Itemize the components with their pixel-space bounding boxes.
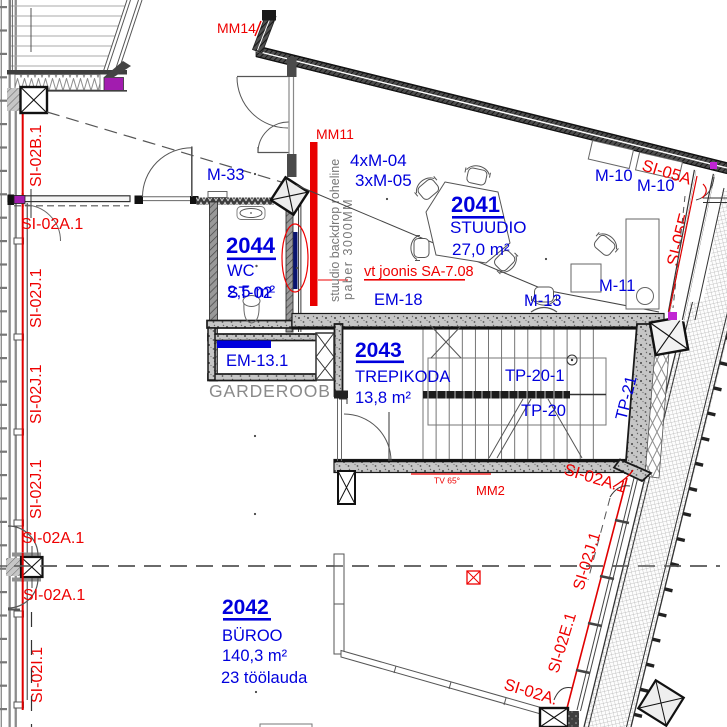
svg-text:EM-13.1: EM-13.1 bbox=[226, 352, 288, 370]
svg-text:stuudio backdrop roheline: stuudio backdrop roheline bbox=[328, 159, 342, 302]
svg-text:13,8 m²: 13,8 m² bbox=[355, 389, 411, 407]
svg-text:BÜROO: BÜROO bbox=[222, 627, 283, 645]
svg-text:M-13: M-13 bbox=[524, 292, 562, 310]
svg-text:2044: 2044 bbox=[226, 233, 276, 258]
svg-text:EM-18: EM-18 bbox=[374, 291, 423, 309]
svg-text:SI-02J.1: SI-02J.1 bbox=[28, 268, 45, 328]
svg-text:TV 65°: TV 65° bbox=[434, 476, 460, 486]
svg-text:M-11: M-11 bbox=[599, 277, 635, 295]
svg-text:MM11: MM11 bbox=[316, 126, 354, 142]
svg-text:SI-02E.1: SI-02E.1 bbox=[546, 611, 580, 676]
svg-text:SI-02B.1: SI-02B.1 bbox=[28, 125, 45, 187]
svg-text:MM2: MM2 bbox=[476, 483, 505, 498]
svg-text:WC: WC bbox=[227, 262, 255, 280]
svg-text:M-33: M-33 bbox=[207, 166, 245, 184]
svg-text:140,3 m²: 140,3 m² bbox=[222, 647, 288, 665]
svg-text:SI-02J.1: SI-02J.1 bbox=[28, 459, 45, 519]
svg-text:SI-02A.1: SI-02A.1 bbox=[22, 530, 84, 547]
svg-text:SI-02A.1: SI-02A.1 bbox=[23, 587, 85, 604]
svg-text:STUUDIO: STUUDIO bbox=[450, 218, 527, 237]
svg-text:TP-20: TP-20 bbox=[521, 402, 566, 420]
svg-text:2041: 2041 bbox=[451, 192, 500, 217]
svg-text:TP-20-1: TP-20-1 bbox=[505, 367, 565, 385]
svg-text:27,0 m²: 27,0 m² bbox=[452, 240, 510, 259]
svg-text:2042: 2042 bbox=[222, 596, 269, 619]
svg-text:GARDEROOB: GARDEROOB bbox=[209, 381, 331, 401]
svg-text:3xM-05: 3xM-05 bbox=[355, 171, 412, 190]
svg-text:paber 3000MM: paber 3000MM bbox=[341, 198, 355, 300]
svg-text:ST-02: ST-02 bbox=[227, 283, 272, 302]
svg-text:SI-02A.1: SI-02A.1 bbox=[21, 216, 83, 233]
svg-text:MM14: MM14 bbox=[217, 20, 256, 36]
svg-text:2043: 2043 bbox=[355, 339, 402, 362]
svg-text:vt joonis SA-7.08: vt joonis SA-7.08 bbox=[364, 264, 474, 280]
svg-text:23 töölauda: 23 töölauda bbox=[221, 669, 308, 687]
svg-text:TREPIKODA: TREPIKODA bbox=[355, 368, 450, 386]
svg-text:SI-02J.1: SI-02J.1 bbox=[28, 364, 45, 424]
svg-text:M-10: M-10 bbox=[595, 167, 633, 185]
svg-text:4xM-04: 4xM-04 bbox=[350, 151, 407, 170]
